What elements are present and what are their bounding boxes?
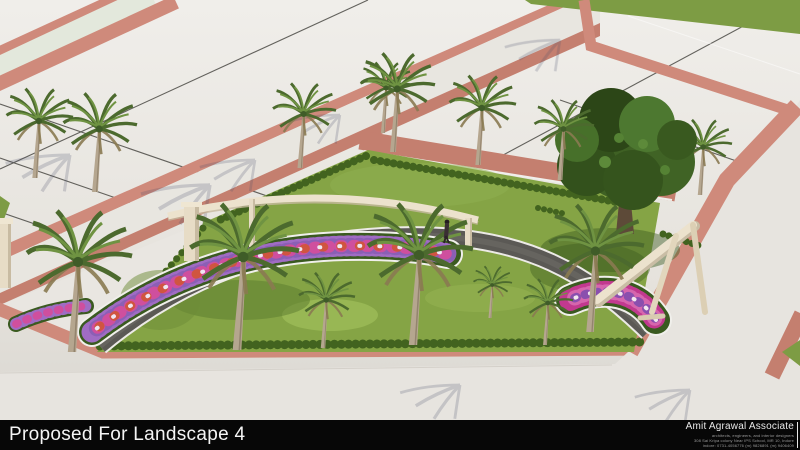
- firm-address: 308 Sai Kripa colony Near IPS School, MR…: [686, 438, 794, 443]
- render-viewport: Proposed For Landscape 4 Amit Agrawal As…: [0, 0, 800, 450]
- caption-bar: Proposed For Landscape 4 Amit Agrawal As…: [0, 420, 800, 450]
- firm-credit: Amit Agrawal Associate architects, engin…: [686, 422, 794, 448]
- firm-name: Amit Agrawal Associate: [686, 422, 794, 433]
- landscape-render: [0, 0, 800, 420]
- divider-line: [797, 422, 798, 448]
- entry-gate-left: [181, 202, 202, 261]
- caption-text: Proposed For Landscape 4: [0, 424, 245, 446]
- firm-contact: indore: 0731-4056776 (m) 9826891 (m) 940…: [686, 443, 794, 448]
